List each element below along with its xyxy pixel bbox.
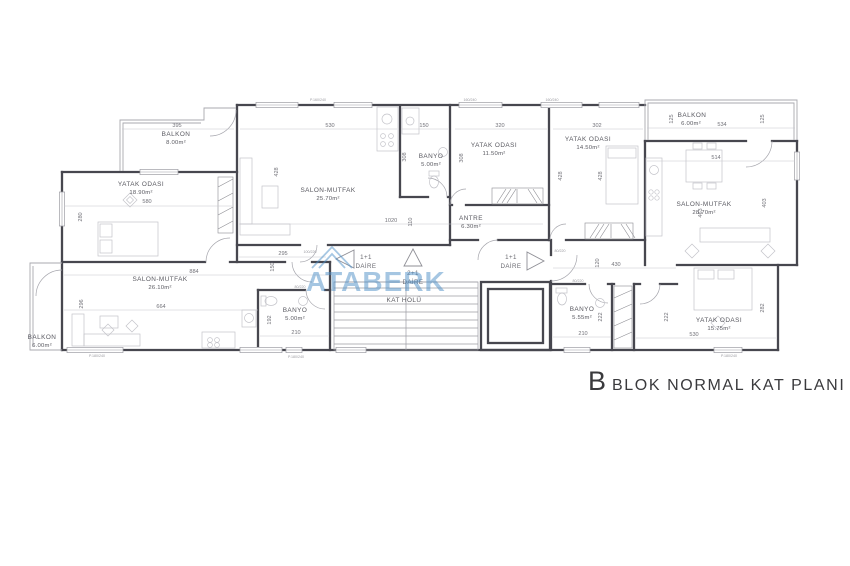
window-tag: P.180/240 — [288, 355, 304, 359]
window-tag: 160/240 — [546, 98, 559, 102]
room-area: 11.50m² — [483, 151, 506, 157]
door-arc — [210, 110, 236, 136]
door-arc — [36, 270, 62, 296]
unit-arrow-icon — [527, 252, 544, 270]
window — [140, 169, 178, 174]
unit-size: 1+1 — [360, 254, 372, 261]
dim-label: 302 — [592, 123, 601, 129]
window — [336, 347, 366, 352]
dim-label: 296 — [79, 299, 85, 308]
dim-label: 280 — [78, 212, 84, 221]
window — [67, 347, 123, 352]
dim-label: 320 — [495, 123, 504, 129]
watermark-logo-icon — [312, 247, 352, 268]
dim-label: 664 — [156, 304, 165, 310]
dim-label: 192 — [267, 315, 273, 324]
dim-label: 530 — [689, 332, 698, 338]
window — [240, 347, 282, 352]
room-name: YATAK ODASI — [565, 136, 611, 143]
dim-label: 1020 — [385, 218, 397, 224]
window-tag: P.180/240 — [721, 354, 737, 358]
dim-label: 222 — [664, 312, 670, 321]
room-name: YATAK ODASI — [696, 317, 742, 324]
room-name: BANYO — [283, 307, 308, 314]
door-arc — [550, 224, 566, 240]
window — [714, 347, 742, 352]
dim-label: 295 — [278, 251, 287, 257]
title-prefix: B — [588, 366, 607, 396]
door-tag: 80/220 — [295, 285, 306, 289]
dim-label: 210 — [578, 331, 587, 337]
window — [256, 102, 298, 107]
door-arc — [450, 189, 466, 205]
room-name: SALON-MUTFAK — [300, 187, 355, 194]
dim-label: 430 — [611, 262, 620, 268]
dim-label: 403 — [762, 198, 768, 207]
room-name: KAT HOLÜ — [387, 296, 422, 304]
room-area: 5.00m² — [421, 162, 441, 168]
room-area: 26.10m² — [148, 285, 171, 291]
door-tag: 80/220 — [555, 249, 566, 253]
room-area: 8.00m² — [166, 140, 186, 146]
room-area: 6.30m² — [461, 224, 481, 230]
drawing-title: BBLOK NORMAL KAT PLANI — [588, 366, 845, 397]
dimension-labels: 395 580 280 530 428 150 308 320 308 302 … — [78, 114, 768, 338]
window — [599, 102, 639, 107]
floor-plan-drawing: 395 580 280 530 428 150 308 320 308 302 … — [0, 0, 850, 566]
elevator-shaft-outer — [481, 282, 550, 350]
room-area: 5.55m² — [572, 315, 592, 321]
window-tag: 160/240 — [464, 98, 477, 102]
dim-label: 534 — [717, 122, 726, 128]
unit-arrow-icon — [404, 249, 422, 266]
room-area: 25.70m² — [316, 196, 339, 202]
dim-label: 884 — [189, 269, 198, 275]
unit-word: DAİRE — [501, 263, 522, 270]
door-arc — [640, 284, 660, 304]
room-name: BANYO — [570, 306, 595, 313]
room-name: BANYO — [419, 153, 444, 160]
dim-label: 150 — [419, 123, 428, 129]
door-arc — [428, 178, 447, 197]
dim-label: 428 — [598, 171, 604, 180]
title-text: BLOK NORMAL KAT PLANI — [612, 377, 845, 394]
door-tag: 100/220 — [304, 250, 317, 254]
window — [564, 347, 590, 352]
room-area: 6.00m² — [32, 343, 52, 349]
room-area: 28.70m² — [692, 210, 715, 216]
floor-plan-page: 395 580 280 530 428 150 308 320 308 302 … — [0, 0, 850, 566]
window — [794, 152, 799, 180]
window-tag: P.160/240 — [310, 98, 326, 102]
dim-label: 110 — [408, 218, 414, 227]
room-area: 14.50m² — [576, 145, 599, 151]
dim-label: 514 — [711, 155, 720, 161]
dim-label: 308 — [402, 152, 408, 161]
window — [459, 102, 502, 107]
dim-label: 308 — [459, 153, 465, 162]
watermark-text: ATABERK — [306, 266, 446, 297]
room-name: BALKON — [678, 112, 707, 119]
dim-label: 395 — [172, 123, 181, 129]
door-arc — [478, 240, 498, 260]
room-name: SALON-MUTFAK — [132, 276, 187, 283]
dim-label: 150 — [270, 262, 276, 271]
window — [59, 192, 64, 226]
dim-label: 282 — [760, 303, 766, 312]
dim-label: 210 — [291, 330, 300, 336]
room-area: 6.00m² — [681, 121, 701, 127]
watermark: ATABERK — [306, 247, 446, 297]
door-arc — [589, 284, 608, 303]
window-tag: P.180/240 — [89, 354, 105, 358]
door-arc — [746, 141, 772, 167]
room-name: YATAK ODASI — [471, 142, 517, 149]
room-area: 15.75m² — [707, 326, 730, 332]
dim-label: 222 — [598, 312, 604, 321]
door-tag: 80/220 — [573, 279, 584, 283]
window — [286, 347, 302, 352]
room-name: BALKON — [162, 131, 191, 138]
room-area: 5.00m² — [285, 316, 305, 322]
room-name: YATAK ODASI — [118, 181, 164, 188]
dim-label: 428 — [558, 171, 564, 180]
room-name: ANTRE — [459, 215, 483, 222]
dim-label: 428 — [274, 167, 280, 176]
dim-label: 125 — [669, 114, 675, 123]
window — [541, 102, 582, 107]
room-name: SALON-MUTFAK — [676, 201, 731, 208]
dim-label: 580 — [142, 199, 151, 205]
window — [334, 102, 372, 107]
dim-label: 120 — [595, 258, 601, 267]
room-name: BALKON — [28, 334, 57, 341]
elevator-shaft-inner — [488, 289, 543, 343]
dim-label: 530 — [325, 123, 334, 129]
door-arc — [206, 238, 230, 262]
dim-label: 125 — [760, 114, 766, 123]
room-area: 18.90m² — [129, 190, 152, 196]
unit-size: 1+1 — [505, 254, 517, 261]
